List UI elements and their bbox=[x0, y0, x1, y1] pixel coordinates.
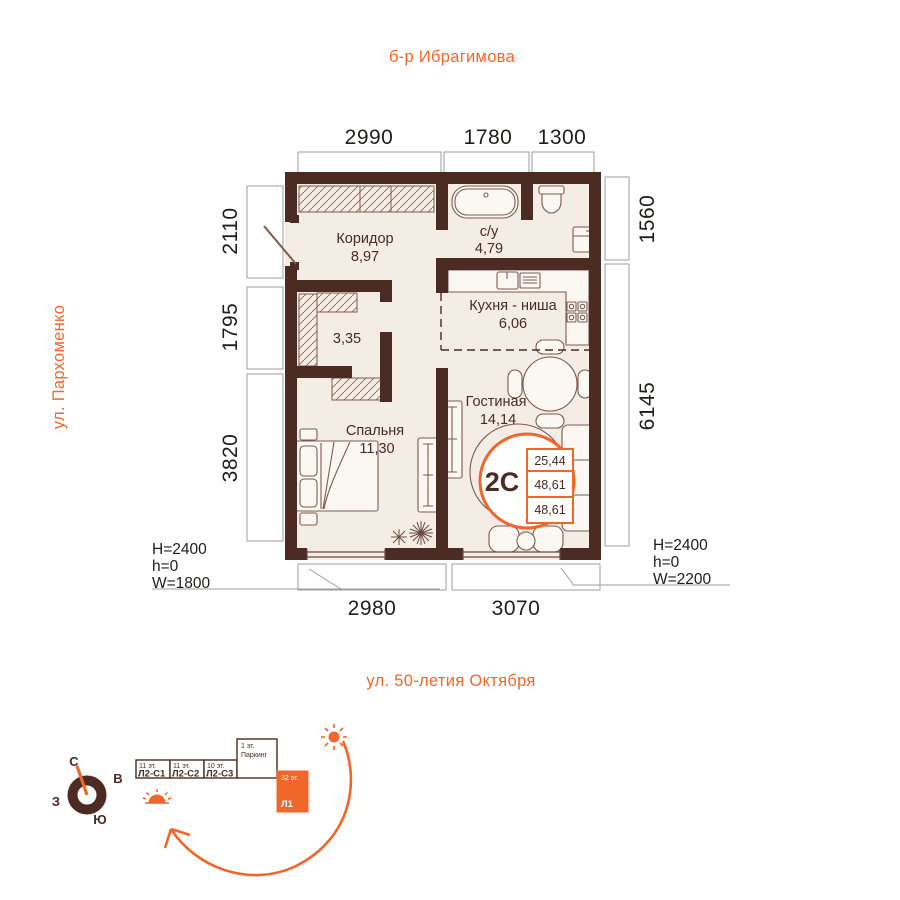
sunset-icon bbox=[143, 789, 171, 803]
tower-floors: 32 эт. bbox=[281, 775, 299, 782]
room-label-bathroom: с/у bbox=[480, 224, 499, 240]
dim-top-3: 1300 bbox=[538, 126, 587, 149]
room-area-closet: 3,35 bbox=[333, 331, 361, 347]
dim-bottom-2: 3070 bbox=[492, 597, 541, 620]
svg-text:W=2200: W=2200 bbox=[653, 571, 712, 588]
svg-text:h=0: h=0 bbox=[653, 554, 680, 571]
floorplan-page: б-р Ибрагимова ул. 50-летия Октября ул. … bbox=[0, 0, 900, 900]
svg-text:H=2400: H=2400 bbox=[653, 537, 708, 554]
block-3-name: Л2-С3 bbox=[206, 769, 233, 780]
room-area-hallway: 8,97 bbox=[351, 249, 379, 265]
compass-w: З bbox=[52, 794, 60, 809]
compass-s: Ю bbox=[93, 812, 106, 827]
street-label-top: б-р Ибрагимова bbox=[389, 48, 516, 66]
room-label-kitchen: Кухня - ниша bbox=[469, 298, 557, 314]
unit-area-2: 48,61 bbox=[534, 478, 565, 492]
room-label-living: Гостиная bbox=[466, 394, 527, 410]
sun-icon bbox=[321, 724, 347, 750]
compass-e: В bbox=[113, 771, 122, 786]
svg-text:h=0: h=0 bbox=[152, 558, 179, 575]
window-spec-right: H=2400 h=0 W=2200 bbox=[653, 537, 712, 588]
room-label-hallway: Коридор bbox=[336, 231, 393, 247]
room-area-kitchen: 6,06 bbox=[499, 316, 527, 332]
svg-text:H=2400: H=2400 bbox=[152, 541, 207, 558]
dim-right-2: 6145 bbox=[636, 382, 659, 431]
room-area-bedroom: 11,30 bbox=[359, 441, 394, 457]
room-label-bedroom: Спальня bbox=[346, 423, 404, 439]
room-area-bathroom: 4,79 bbox=[475, 241, 503, 257]
unit-badge: 2С 25,44 48,61 48,61 bbox=[480, 434, 574, 528]
block-2-name: Л2-С2 bbox=[172, 769, 199, 780]
dim-left-3: 3820 bbox=[219, 434, 242, 483]
bedroom-wardrobe bbox=[332, 378, 384, 400]
dim-top-2: 1780 bbox=[464, 126, 513, 149]
dim-left-2: 1795 bbox=[219, 303, 242, 352]
unit-area-1: 25,44 bbox=[534, 454, 565, 468]
street-label-bottom: ул. 50-летия Октября bbox=[366, 672, 535, 690]
svg-text:W=1800: W=1800 bbox=[152, 575, 211, 592]
hallway-wardrobe bbox=[299, 186, 434, 212]
floorplan-drawing: б-р Ибрагимова ул. 50-летия Октября ул. … bbox=[0, 0, 900, 900]
dim-top-1: 2990 bbox=[345, 126, 394, 149]
room-area-living: 14,14 bbox=[480, 412, 516, 428]
window-spec-left: H=2400 h=0 W=1800 bbox=[152, 541, 211, 592]
unit-type: 2С bbox=[485, 467, 520, 497]
parking-floors: 1 эт. bbox=[241, 743, 255, 750]
compass-n: С bbox=[69, 754, 79, 769]
street-label-left: ул. Пархоменко bbox=[50, 305, 68, 429]
parking-name: Паркинг bbox=[241, 752, 268, 759]
tower-name: Л1 bbox=[281, 799, 294, 810]
block-1-name: Л2-С1 bbox=[138, 769, 166, 780]
compass-icon: С В З Ю bbox=[52, 754, 123, 827]
dim-bottom-1: 2980 bbox=[348, 597, 397, 620]
unit-area-3: 48,61 bbox=[534, 503, 565, 517]
dim-right-1: 1560 bbox=[636, 195, 659, 244]
bathtub bbox=[452, 186, 518, 218]
dim-left-1: 2110 bbox=[219, 207, 242, 254]
